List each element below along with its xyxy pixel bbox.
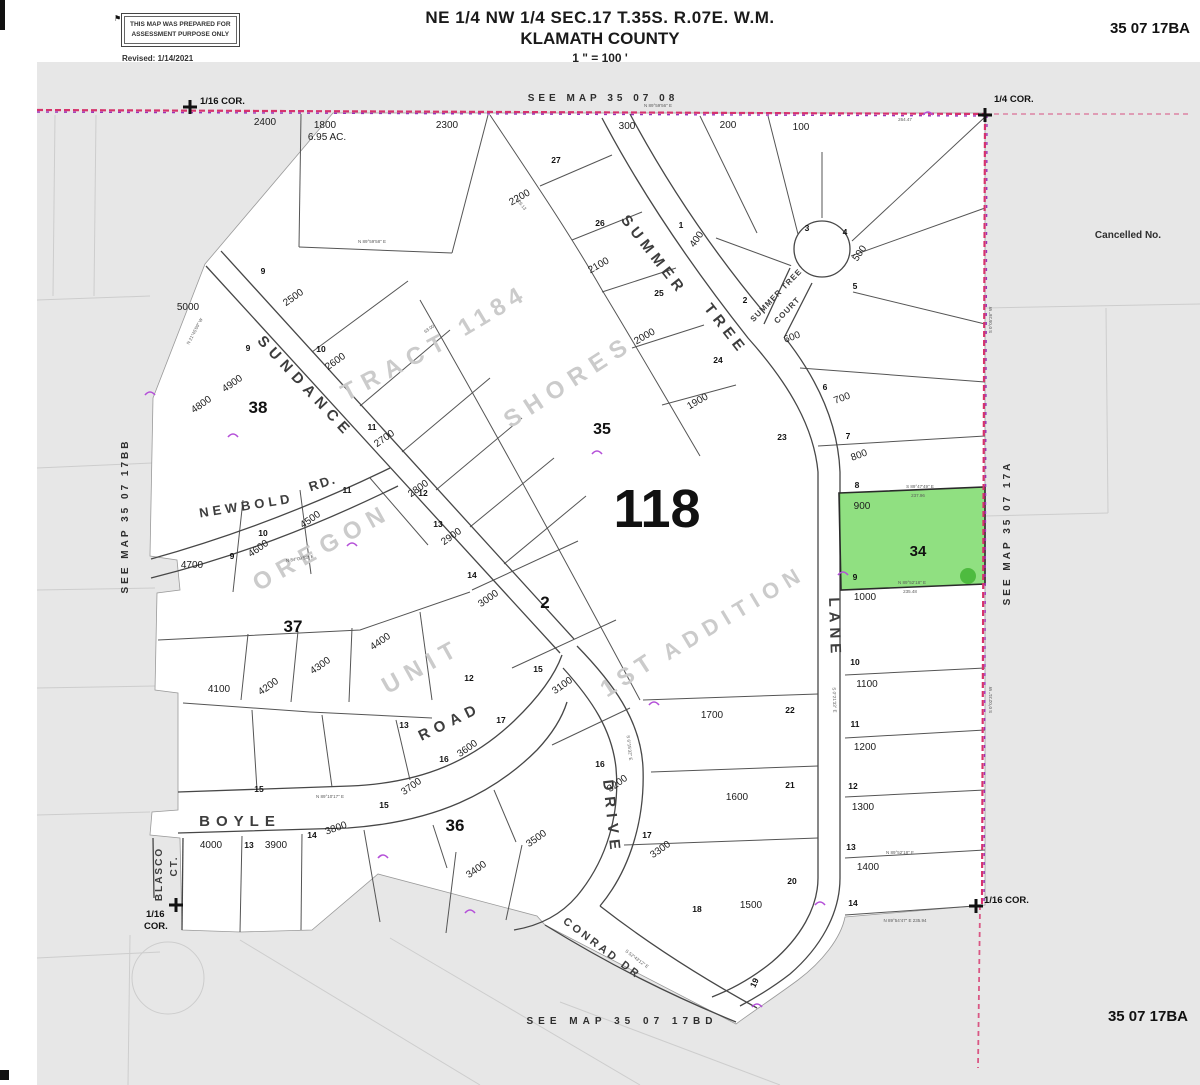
map-id-top: 35 07 17BA [1110,20,1190,37]
lot_numbers-label: 6 [823,382,828,392]
lot_numbers-label: 13 [846,842,856,852]
bearings-label: S 0°05'26" W [988,306,993,333]
seemaps-label: Cancelled No. [1095,230,1161,241]
lot_numbers-label: 12 [464,673,474,683]
lot_numbers-label: 12 [418,488,428,498]
lots-label: 6.95 AC. [308,132,346,143]
bearings-label: N 89°10'17" E [316,794,344,799]
blocks-label: 34 [910,543,927,560]
lots-label: 100 [793,122,810,133]
lots-label: 5000 [177,302,200,313]
lot_numbers-label: 16 [439,754,449,764]
lot_numbers-label: 16 [595,759,605,769]
bearings-label: S 0°21'33" E [832,687,838,712]
lots-label: 1800 [314,120,337,131]
lot_numbers-label: 23 [777,432,787,442]
lot_numbers-label: 27 [551,155,561,165]
lots-label: 1100 [856,679,878,690]
lot_numbers-label: 5 [853,281,858,291]
lot_numbers-label: 11 [368,422,377,432]
lot_numbers-label: 15 [533,664,543,674]
roads-label: BLASCO [154,847,165,901]
bearings-label: 237.96 [911,493,925,498]
lot_numbers-label: 17 [642,830,652,840]
lots-label: 4700 [181,560,204,571]
map-id-bottom: 35 07 17BA [1108,1008,1188,1025]
lot_numbers-label: 11 [851,719,860,729]
lot_numbers-label: 3 [805,223,810,233]
blocks-label: 35 [593,421,611,438]
lot_numbers-label: 4 [843,227,848,237]
seemaps-label: SEE MAP 35 07 17BD [527,1016,718,1027]
lots-label: 4000 [200,840,223,851]
lot_numbers-label: 13 [244,840,254,850]
lots-label: 1600 [726,792,749,803]
corners-label: 1/16 COR. [200,96,245,107]
lot_numbers-label: 11 [343,485,352,495]
lot_numbers-label: 24 [713,355,723,365]
lots-label: 1000 [854,592,877,603]
lot_numbers-label: 14 [307,830,317,840]
lots-label: 1700 [701,710,724,721]
lot_numbers-label: 9 [230,551,235,561]
lot_numbers-label: 10 [316,344,326,354]
lot_numbers-label: 14 [848,898,858,908]
lot_numbers-label: 8 [855,480,860,490]
revised-date: Revised: 1/14/2021 [122,54,193,63]
blocks-label: 36 [446,816,465,835]
lot_numbers-label: 9 [246,343,251,353]
corners-label: 1/16 COR. [984,895,1029,906]
lots-label: 2400 [254,117,277,128]
plat-map: 1184TRACTSHORESOREGONUNIT1STADDITION SUN… [0,0,1200,1085]
lots-label: 1400 [857,862,880,873]
lot_numbers-label: 13 [433,519,443,529]
bearings-label: S 0°02'31" W [988,686,993,713]
lot_numbers-label: 21 [785,780,795,790]
bearings-label: N 89°59'58" E [358,239,386,244]
bearings-label: 235.48 [903,589,917,594]
lot_numbers-label: 18 [692,904,702,914]
blocks-label: 2 [540,593,549,612]
lot_numbers-label: 7 [846,431,851,441]
bearings-label: N 89°52'18" E [886,850,914,855]
lots-label: 1500 [740,900,763,911]
lot_numbers-label: 10 [850,657,860,667]
bearings-label: N 89°52'18" E [898,580,926,585]
lot_numbers-label: 17 [496,715,506,725]
lot_numbers-label: 2 [743,295,748,305]
scan-artifact-bottom [0,1070,9,1080]
highlight-smudge [960,568,976,584]
lots-label: 3900 [265,840,288,851]
lot_numbers-label: 15 [379,800,389,810]
lots-label: 300 [619,121,636,132]
roads-label: LANE [825,597,844,658]
seemaps-label: SEE MAP 35 07 08 [528,93,679,104]
lots-label: 2300 [436,120,459,131]
blocks-label: 38 [249,398,268,417]
lot_numbers-label: 10 [258,528,268,538]
corners-label: COR. [144,921,168,932]
lot_numbers-label: 1 [679,220,684,230]
lot_numbers-label: 12 [848,781,858,791]
bearings-label: 264.47 [898,117,912,122]
bearings-label: N 89°54'47" E 235.94 [883,918,927,923]
corners-label: 1/4 COR. [994,94,1034,105]
lot_numbers-label: 13 [399,720,409,730]
corners-label: 1/16 [146,909,165,920]
disclaimer-line1: THIS MAP WAS PREPARED FOR [130,20,231,30]
roads-label: BOYLE [199,813,281,830]
lot_numbers-label: 25 [654,288,664,298]
lot_numbers-label: 20 [787,876,797,886]
lot_numbers-label: 15 [254,784,264,794]
lot_numbers-label: 22 [785,705,795,715]
lots-label: 900 [854,501,871,512]
lots-label: 1200 [854,742,877,753]
lots-label: 1300 [852,802,875,813]
blocks-label: 118 [613,479,700,539]
flag-icon: ⚑ [114,14,121,23]
lots-label: 4100 [208,684,231,695]
seemaps-label: SEE MAP 35 07 17A [1002,461,1013,606]
bearings-label: S 89°47'49" E [906,484,934,489]
seemaps-label: SEE MAP 35 07 17BB [120,439,131,594]
scan-artifact-top [0,0,5,30]
assessment-map-page: ⚑ THIS MAP WAS PREPARED FOR ASSESSMENT P… [0,0,1200,1085]
blocks-label: 37 [284,617,303,636]
lot_numbers-label: 9 [853,572,858,582]
lots-label: 200 [720,120,737,131]
lot_numbers-label: 9 [261,266,266,276]
lot_numbers-label: 14 [467,570,477,580]
lot_numbers-label: 26 [595,218,605,228]
disclaimer-box: THIS MAP WAS PREPARED FOR ASSESSMENT PUR… [121,13,240,47]
disclaimer-line2: ASSESSMENT PURPOSE ONLY [130,30,231,40]
roads-label: CT. [169,856,180,877]
